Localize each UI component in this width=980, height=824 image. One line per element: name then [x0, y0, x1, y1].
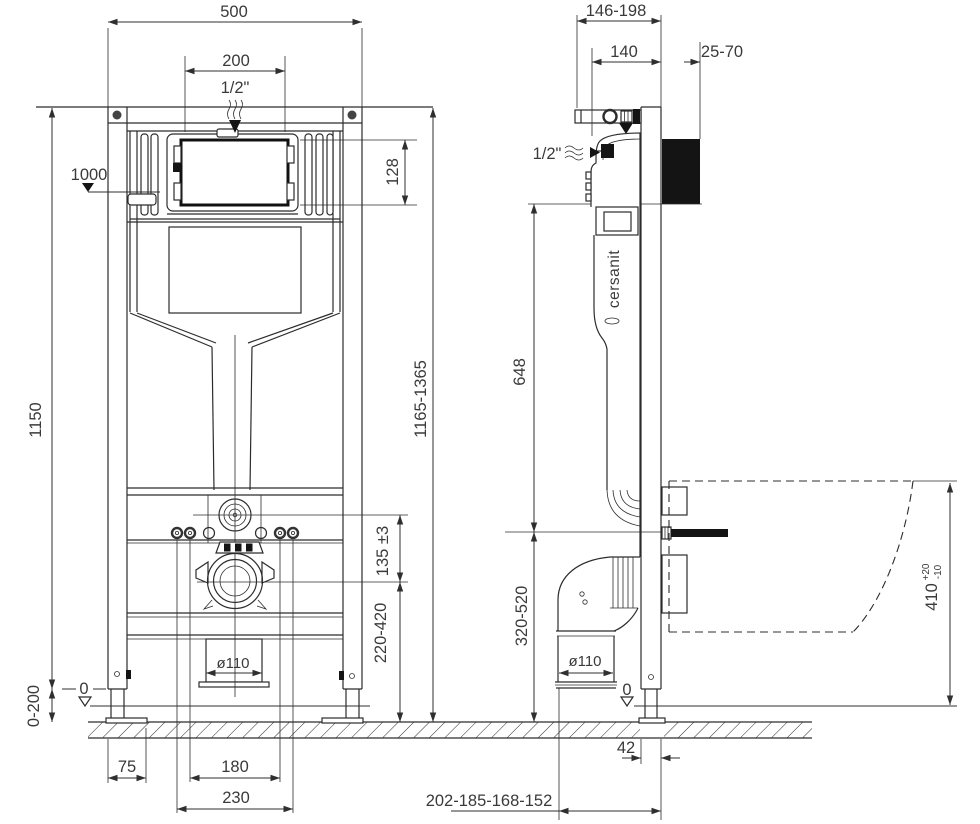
label-water-inlet-front: 1/2" [221, 79, 250, 97]
label-water-inlet-side: 1/2" [533, 145, 562, 163]
label-level-zero-front: 0 [79, 680, 88, 698]
brand-logo: cersanit [606, 250, 623, 308]
dim-bowl-height-tol-plus: +20 [921, 563, 932, 580]
service-notch [128, 194, 156, 205]
dim-plate-to-axis-height: 648 [511, 358, 529, 386]
dim-bolt-spacing-outer: 230 [222, 789, 250, 807]
dim-drain-height-range: 220-420 [372, 603, 390, 664]
label-level-1000: 1000 [71, 166, 108, 184]
clip-icon [339, 671, 344, 680]
clip-icon [126, 670, 131, 679]
dim-frame-depth: 140 [610, 43, 638, 61]
dim-water-drain-offset: 135 ±3 [374, 526, 392, 576]
dim-depth-range: 146-198 [586, 2, 647, 20]
wall-bracket [575, 109, 641, 124]
screw-icon [113, 111, 122, 120]
dim-bowl-height-tol-minus: -10 [933, 564, 944, 579]
screw-icon [348, 111, 357, 120]
drain-outlet-boss [662, 555, 687, 613]
dim-drain-offset-options: 202-185-168-152 [426, 792, 553, 810]
floor [88, 722, 812, 738]
dim-drain-diameter-side: ø110 [568, 653, 601, 670]
dim-foot-edge-offset: 75 [118, 758, 136, 776]
dim-total-height-range: 1165-1365 [412, 360, 430, 438]
foot-plate [322, 718, 363, 723]
flush-plate-opening [181, 140, 288, 205]
drain-template-base [199, 682, 269, 687]
fill-valve-icon [601, 144, 614, 158]
dim-profile-depth: 42 [617, 739, 635, 757]
dim-flush-opening-width: 200 [222, 52, 250, 70]
latch-icon [173, 163, 181, 172]
bracket-bolt-icon [604, 110, 617, 123]
installation-frame-diagram: 500 200 1/2" 1000 128 1150 0-200 0 1165-… [0, 0, 980, 824]
dim-feet-adjustment: 0-200 [25, 685, 43, 727]
dim-bowl-height: 410 [923, 583, 941, 611]
dim-bolt-spacing-inner: 180 [221, 758, 249, 776]
foot-plate [639, 718, 665, 723]
dim-flush-opening-height: 128 [384, 158, 402, 186]
dim-overall-width: 500 [220, 3, 248, 21]
dim-wall-finish-range: 25-70 [701, 43, 743, 61]
technical-drawing: 500 200 1/2" 1000 128 1150 0-200 0 1165-… [0, 0, 980, 824]
flush-outlet-boss [662, 487, 687, 515]
label-level-zero-side: 0 [622, 681, 631, 699]
foot-plate [106, 718, 147, 723]
dim-frame-height: 1150 [27, 402, 45, 437]
dim-drain-axis-height-range: 320-520 [513, 586, 531, 647]
flush-actuator-plate [662, 139, 700, 204]
dim-drain-diameter-front: ø110 [216, 655, 249, 672]
